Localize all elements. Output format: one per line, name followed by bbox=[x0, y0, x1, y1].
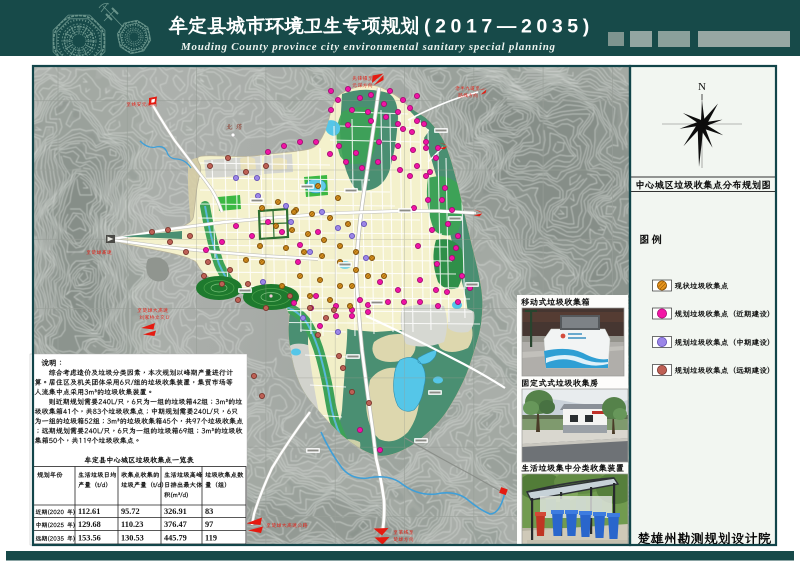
svg-text:N: N bbox=[698, 81, 706, 93]
svg-text:112.61: 112.61 bbox=[78, 507, 100, 516]
svg-text:153.56: 153.56 bbox=[78, 534, 101, 543]
svg-text:Mouding County province city e: Mouding County province city environment… bbox=[180, 41, 556, 53]
svg-text:119: 119 bbox=[205, 534, 217, 543]
svg-text:129.68: 129.68 bbox=[78, 520, 101, 529]
svg-text:376.47: 376.47 bbox=[164, 520, 187, 529]
svg-text:(2017—2035): (2017—2035) bbox=[424, 16, 594, 38]
svg-text:110.23: 110.23 bbox=[121, 520, 143, 529]
svg-text:83: 83 bbox=[205, 507, 213, 516]
svg-text:95.72: 95.72 bbox=[121, 507, 140, 516]
svg-text:326.91: 326.91 bbox=[164, 507, 187, 516]
svg-text:97: 97 bbox=[205, 520, 213, 529]
svg-text:445.79: 445.79 bbox=[164, 534, 187, 543]
svg-text:130.53: 130.53 bbox=[121, 534, 144, 543]
